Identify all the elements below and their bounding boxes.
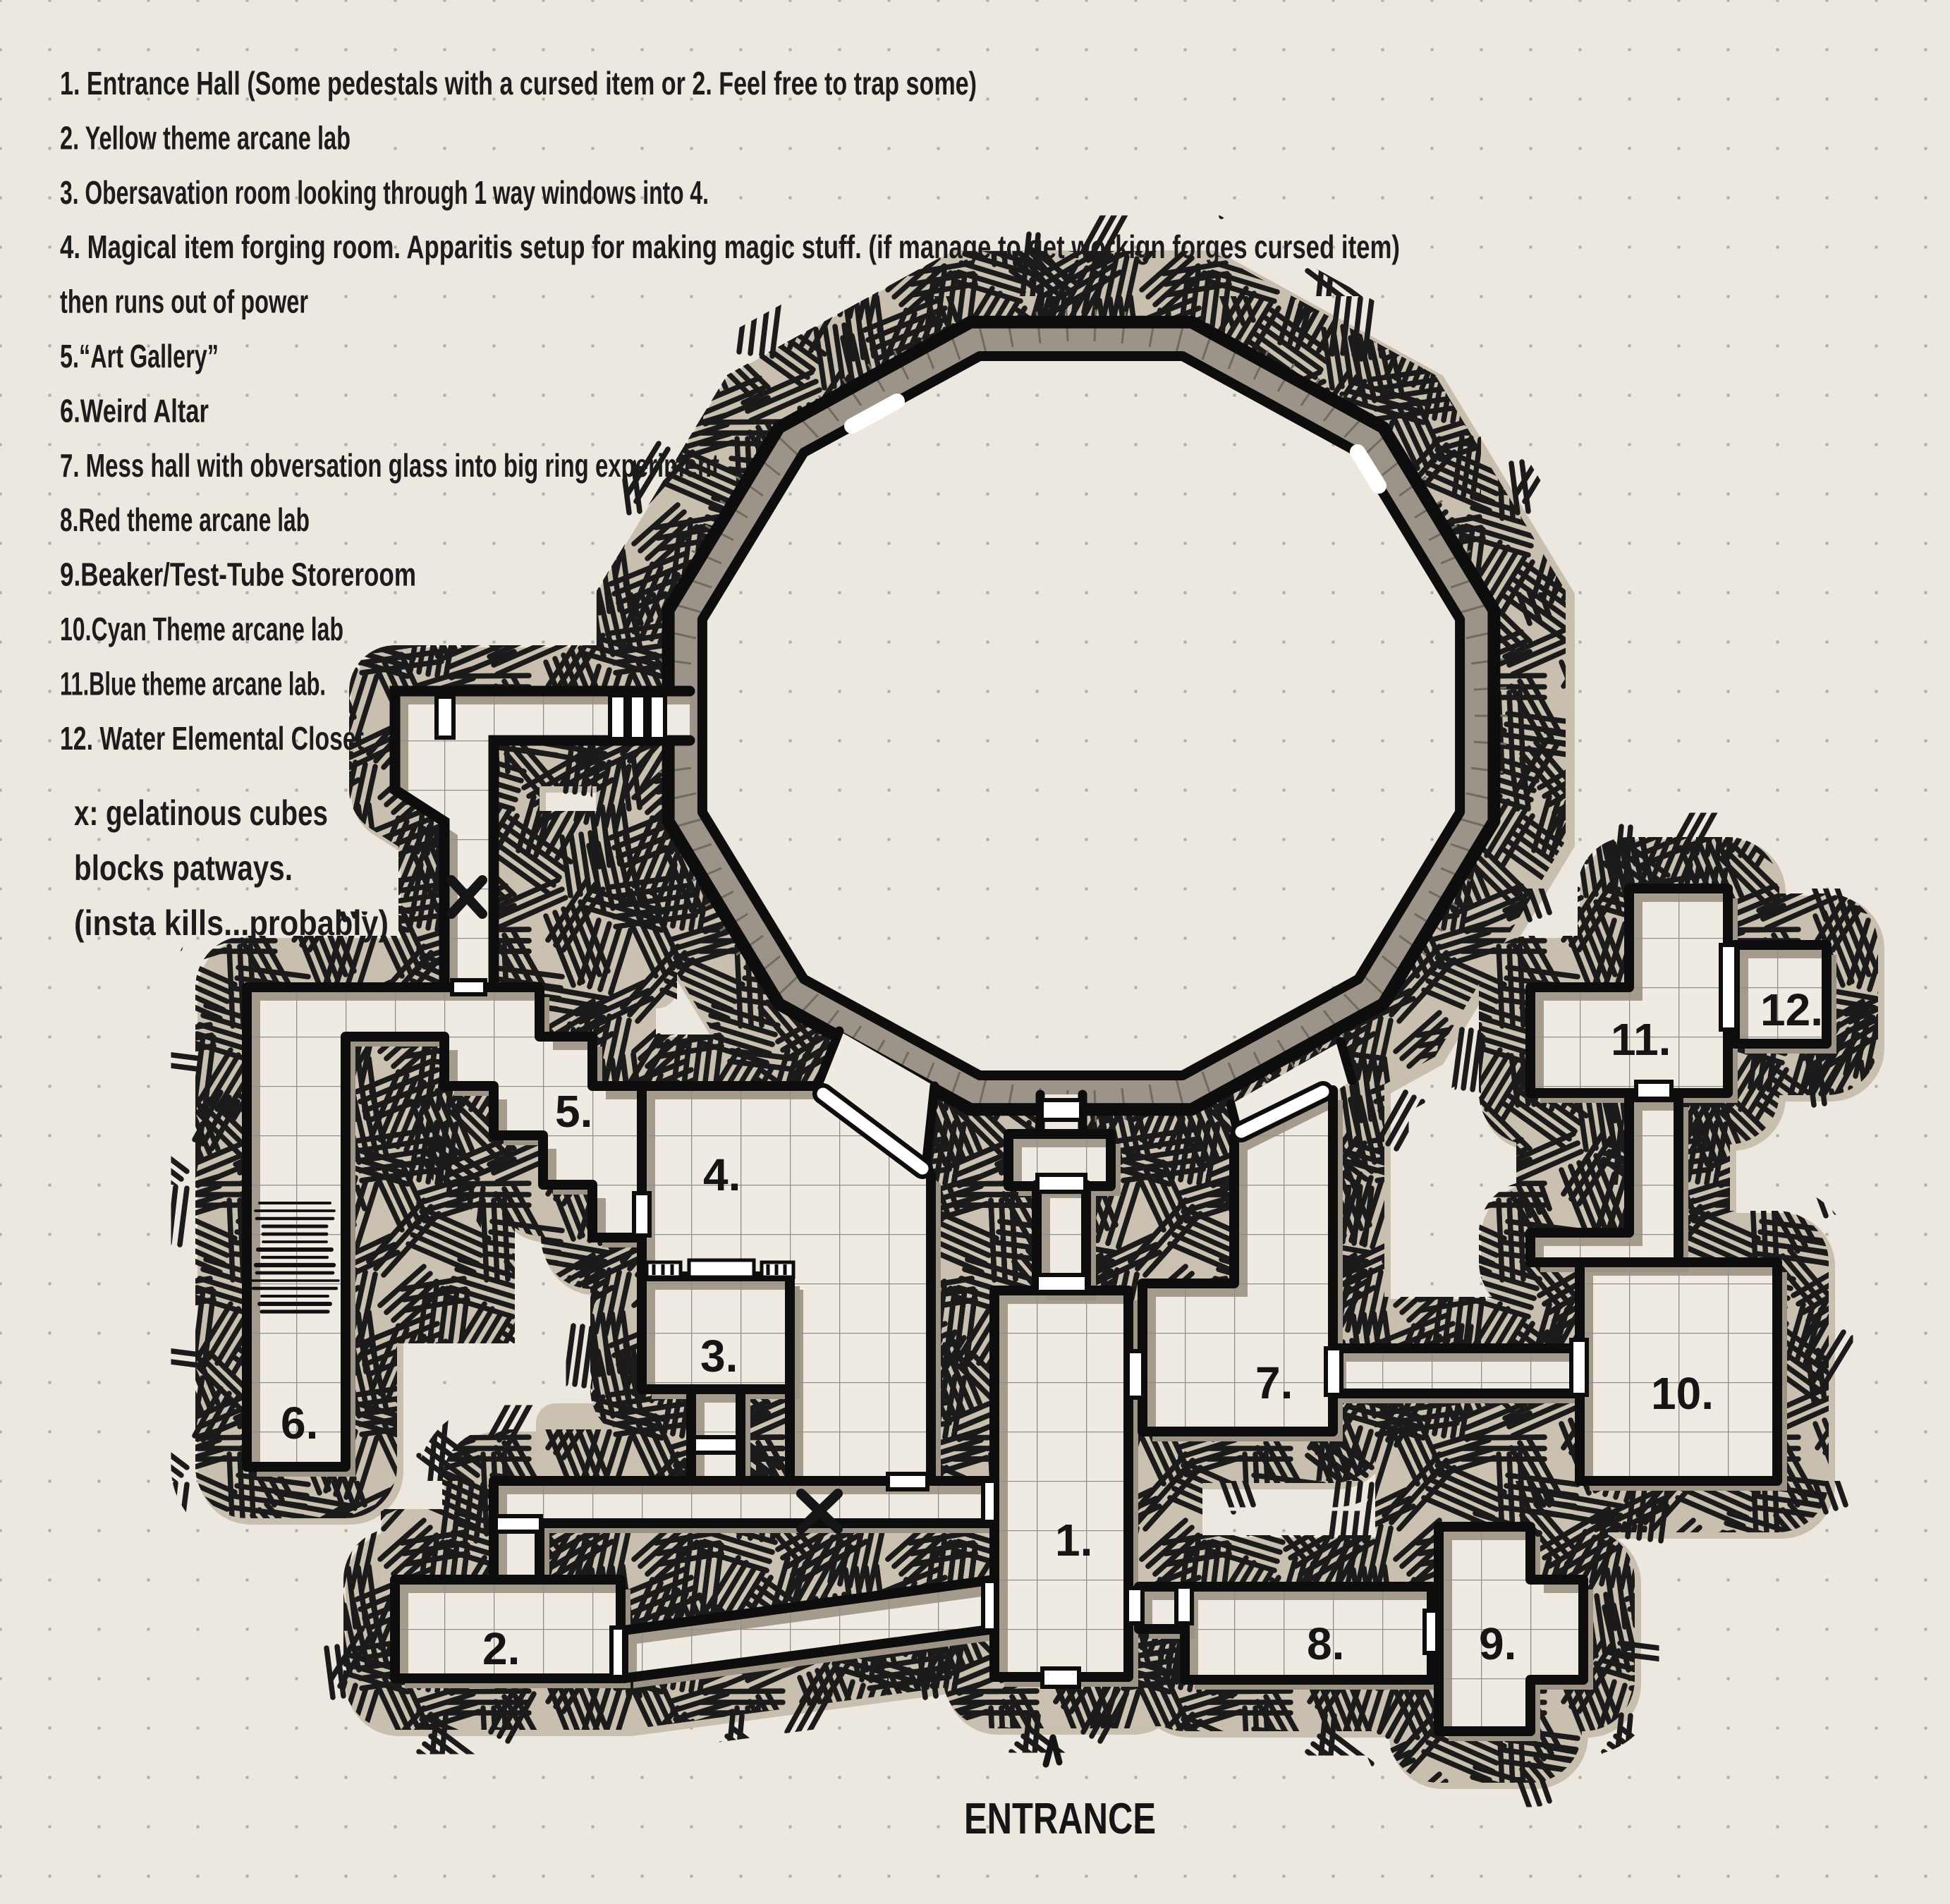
svg-text:(insta kills...probably): (insta kills...probably): [74, 903, 389, 943]
svg-text:8.: 8.: [1307, 1618, 1344, 1669]
svg-text:12. Water Elemental Closet: 12. Water Elemental Closet: [60, 720, 364, 757]
svg-text:12.: 12.: [1760, 984, 1823, 1035]
svg-text:3. Obersavation room looking t: 3. Obersavation room looking through 1 w…: [60, 174, 709, 211]
svg-text:10.Cyan Theme arcane lab: 10.Cyan Theme arcane lab: [60, 611, 343, 647]
svg-text:then runs out of power: then runs out of power: [60, 283, 308, 320]
svg-text:8.Red theme arcane lab: 8.Red theme arcane lab: [60, 501, 310, 538]
svg-text:4. Magical item forging room.: 4. Magical item forging room. Apparitis …: [60, 228, 1400, 265]
svg-text:5.: 5.: [555, 1086, 592, 1137]
svg-text:ENTRANCE: ENTRANCE: [964, 1795, 1156, 1843]
svg-text:11.: 11.: [1611, 1014, 1671, 1065]
svg-text:blocks patways.: blocks patways.: [74, 848, 293, 888]
svg-text:11.Blue theme arcane lab.: 11.Blue theme arcane lab.: [60, 665, 326, 702]
svg-text:9.: 9.: [1479, 1618, 1516, 1669]
svg-text:2.: 2.: [482, 1623, 520, 1674]
svg-text:1. Entrance Hall (Some pedesta: 1. Entrance Hall (Some pedestals with a …: [60, 65, 977, 102]
svg-text:4.: 4.: [703, 1149, 741, 1200]
svg-text:9.Beaker/Test-Tube Storeroom: 9.Beaker/Test-Tube Storeroom: [60, 556, 416, 593]
svg-text:6.Weird Altar: 6.Weird Altar: [60, 392, 209, 429]
svg-text:2. Yellow theme arcane lab: 2. Yellow theme arcane lab: [60, 119, 351, 156]
svg-text:6.: 6.: [281, 1398, 318, 1448]
svg-text:10.: 10.: [1651, 1368, 1714, 1419]
svg-text:5.“Art Gallery”: 5.“Art Gallery”: [60, 338, 219, 374]
svg-text:7. Mess hall with obversation: 7. Mess hall with obversation glass into…: [60, 447, 719, 484]
svg-text:7.: 7.: [1255, 1357, 1293, 1408]
svg-text:3.: 3.: [700, 1331, 738, 1381]
svg-text:x: gelatinous cubes: x: gelatinous cubes: [74, 793, 328, 833]
svg-text:1.: 1.: [1055, 1515, 1092, 1566]
